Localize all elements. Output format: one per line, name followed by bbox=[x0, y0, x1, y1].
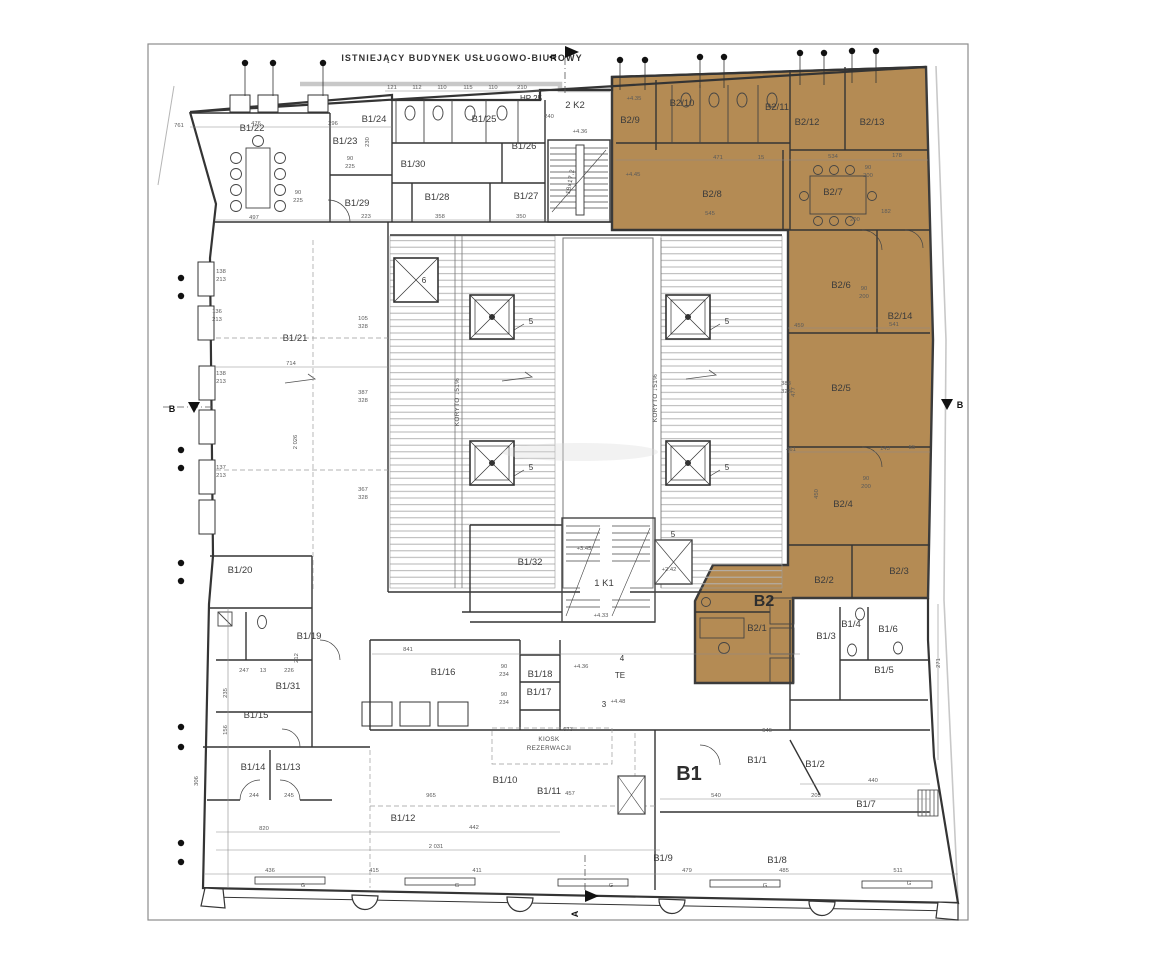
section-letter-b-left: B bbox=[169, 404, 176, 414]
conference-table-b122 bbox=[231, 136, 286, 212]
shaft-small bbox=[618, 776, 645, 814]
dimension-text: 411 bbox=[472, 868, 481, 874]
room-label: B1/1 bbox=[747, 755, 767, 766]
room-label: B1/10 bbox=[493, 775, 518, 786]
room-label: B1/32 bbox=[518, 557, 543, 568]
dimension-text: 200 bbox=[859, 294, 869, 300]
dimension-text: 244 bbox=[249, 793, 259, 799]
room-label: B1/23 bbox=[333, 136, 358, 147]
dimension-text: 110 bbox=[488, 85, 497, 91]
dimension-text: 471 bbox=[713, 155, 723, 161]
room-label: B2/3 bbox=[889, 566, 909, 577]
dimension-text: 121 bbox=[387, 85, 397, 91]
dimension-text: 485 bbox=[779, 868, 789, 874]
dimension-text: 296 bbox=[328, 121, 338, 127]
shaft-label: 5 bbox=[725, 463, 730, 472]
dimension-text: 350 bbox=[516, 214, 526, 220]
room-label: B1/14 bbox=[241, 762, 266, 773]
room-label: B1/15 bbox=[244, 710, 269, 721]
dimension-text: 323 bbox=[781, 389, 791, 395]
dimension-text: 138 bbox=[216, 269, 226, 275]
room-label: B1/3 bbox=[816, 631, 836, 642]
dimension-text: +2.42 bbox=[662, 567, 677, 573]
dimension-text: 387 bbox=[358, 390, 368, 396]
room-label: B2/4 bbox=[833, 499, 853, 510]
dimension-text: +4.35 bbox=[627, 96, 642, 102]
dimension-text: 328 bbox=[358, 398, 368, 404]
dimension-text: 271 bbox=[936, 658, 942, 668]
elevator-shaft bbox=[655, 540, 692, 584]
dimension-text: +4.36 bbox=[574, 664, 589, 670]
dimension-text: 497 bbox=[249, 215, 259, 221]
room-label: B1/30 bbox=[401, 159, 426, 170]
dimension-text: 225 bbox=[293, 198, 303, 204]
dimension-text: 646 bbox=[762, 728, 772, 734]
floor-plan-drawing: ISTNIEJĄCY BUDYNEK USŁUGOWO-BIUROWY bbox=[0, 0, 1166, 960]
room-label: B2/5 bbox=[831, 383, 851, 394]
section-flag-b-right bbox=[941, 399, 953, 410]
room-label: B1/28 bbox=[425, 192, 450, 203]
shaft-label: 5 bbox=[529, 463, 534, 472]
dimension-text: +4.48 bbox=[611, 699, 626, 705]
room-label: B2/6 bbox=[831, 280, 851, 291]
room-label: B1/19 bbox=[297, 631, 322, 642]
dimension-text: 442 bbox=[469, 825, 479, 831]
dimension-text: 367 bbox=[358, 487, 368, 493]
dimension-text: 137 bbox=[216, 465, 226, 471]
dimension-text: 234 bbox=[499, 700, 509, 706]
dimension-text: 841 bbox=[403, 647, 413, 653]
dimension-text: 213 bbox=[212, 317, 222, 323]
shaft-label: 3 bbox=[602, 700, 607, 709]
watermark-smudge bbox=[502, 443, 658, 461]
dimension-text: 213 bbox=[216, 277, 226, 283]
dimension-text: 90 bbox=[863, 476, 869, 482]
section-letter-b-right: B bbox=[957, 400, 964, 410]
dimension-text: 240 bbox=[544, 114, 554, 120]
dimension-text: 15 bbox=[758, 155, 764, 161]
dimension-text: 2 026 bbox=[293, 435, 299, 450]
room-label: B1/7 bbox=[856, 799, 876, 810]
dimension-text: 476 bbox=[251, 121, 261, 127]
ramp-hatch bbox=[918, 790, 938, 816]
dimension-text: 457 bbox=[565, 791, 575, 797]
annotation: REZERWACJI bbox=[527, 745, 572, 752]
room-label: B2/13 bbox=[860, 117, 885, 128]
shaft-label: 5 bbox=[725, 317, 730, 326]
dimension-text: 225 bbox=[345, 164, 355, 170]
room-label: B2/14 bbox=[888, 311, 913, 322]
dimension-text: 540 bbox=[711, 793, 721, 799]
shaft-6 bbox=[394, 258, 438, 302]
dimension-text: 761 bbox=[174, 123, 184, 129]
wc-fixtures-top bbox=[396, 100, 518, 143]
floor-plan-page: ISTNIEJĄCY BUDYNEK USŁUGOWO-BIUROWY bbox=[0, 0, 1166, 960]
shaft-label: 4 bbox=[620, 654, 625, 663]
dimension-text: 440 bbox=[868, 778, 878, 784]
dimension-text: 328 bbox=[358, 495, 368, 501]
dimension-text: 90 bbox=[501, 692, 507, 698]
area-label: B1 bbox=[676, 763, 702, 785]
room-label: B2/7 bbox=[823, 187, 843, 198]
dimension-text: 245 bbox=[284, 793, 294, 799]
dimension-text: 226 bbox=[284, 668, 294, 674]
dimension-text: +4.33 bbox=[594, 613, 609, 619]
room-label: B1/11 bbox=[537, 786, 561, 797]
stair-2K2 bbox=[550, 145, 608, 215]
dimension-text: 156 bbox=[223, 725, 229, 735]
dimension-text: 541 bbox=[889, 322, 899, 328]
room-label: B1/21 bbox=[283, 333, 308, 344]
dimension-text: 415 bbox=[369, 868, 379, 874]
dimension-text: 136 bbox=[212, 309, 222, 315]
roof-slope-arrow bbox=[285, 374, 315, 383]
dimension-text: 234 bbox=[499, 672, 509, 678]
dimension-text: 200 bbox=[850, 217, 860, 223]
dimension-text: 306 bbox=[194, 776, 200, 786]
room-label: B1/25 bbox=[472, 114, 497, 125]
dimension-text: 90 bbox=[861, 286, 867, 292]
room-label: B1/8 bbox=[767, 855, 787, 866]
dimension-text: 213 bbox=[216, 379, 226, 385]
drawing-title: ISTNIEJĄCY BUDYNEK USŁUGOWO-BIUROWY bbox=[341, 53, 582, 63]
dimension-text: 143 bbox=[880, 446, 890, 452]
room-label: B2/11 bbox=[765, 102, 789, 113]
shaft-label: TE bbox=[615, 671, 625, 680]
shaft-label: 6 bbox=[422, 276, 427, 285]
atrium-void bbox=[563, 238, 653, 588]
dimension-text: 436 bbox=[265, 868, 275, 874]
room-label: B2/12 bbox=[795, 117, 820, 128]
dimension-text: 230 bbox=[365, 137, 371, 147]
dimension-text: 545 bbox=[705, 211, 715, 217]
room-label: B2/8 bbox=[702, 189, 722, 200]
dimension-text: G bbox=[301, 883, 306, 889]
shaft-label: HP 25 bbox=[520, 94, 543, 103]
dimension-text: 328 bbox=[358, 324, 368, 330]
dimension-text: 714 bbox=[286, 361, 296, 367]
annotation: 18x17,2 bbox=[565, 169, 576, 195]
dimension-text: 479 bbox=[682, 868, 692, 874]
dimension-text: 182 bbox=[881, 209, 891, 215]
room-label: B1/17 bbox=[527, 687, 552, 698]
section-flag-b-left bbox=[188, 402, 200, 413]
room-label: B1/13 bbox=[276, 762, 301, 773]
stair-label: 1 K1 bbox=[594, 578, 614, 589]
dimension-text: 450 bbox=[814, 489, 820, 499]
dimension-text: G bbox=[609, 883, 614, 889]
dimension-text: 358 bbox=[435, 214, 445, 220]
room-label: B2/9 bbox=[620, 115, 640, 126]
dimension-text: 477 bbox=[791, 387, 797, 397]
room-label: B2/2 bbox=[814, 575, 834, 586]
room-label: B1/4 bbox=[841, 619, 861, 630]
skylight bbox=[666, 295, 710, 339]
dimension-text: G bbox=[907, 881, 912, 887]
dimension-text: 461 bbox=[786, 447, 796, 453]
room-label: B1/18 bbox=[528, 669, 553, 680]
dimension-text: G bbox=[455, 883, 460, 889]
room-label: B1/9 bbox=[653, 853, 673, 864]
dimension-text: 90 bbox=[295, 190, 301, 196]
section-flag-a-bottom bbox=[585, 890, 599, 902]
dimension-text: 178 bbox=[892, 153, 902, 159]
annotation: KORYTO ↓51% bbox=[454, 378, 461, 426]
room-label: B1/6 bbox=[878, 624, 898, 635]
section-letter-a-top: A bbox=[548, 53, 558, 60]
dimension-text: 820 bbox=[259, 826, 269, 832]
dimension-text: 55 bbox=[909, 445, 915, 451]
shaft-label: 5 bbox=[671, 530, 676, 539]
dimension-text: 673 bbox=[563, 727, 573, 733]
dimension-text: 223 bbox=[361, 214, 371, 220]
room-label: B1/12 bbox=[391, 813, 416, 824]
section-letter-a-bottom: A bbox=[570, 910, 580, 917]
dimension-text: G bbox=[763, 883, 768, 889]
dimension-text: 90 bbox=[347, 156, 353, 162]
dimension-text: 235 bbox=[223, 688, 229, 698]
room-label: B1/16 bbox=[431, 667, 456, 678]
skylight bbox=[470, 295, 514, 339]
room-label: B1/31 bbox=[276, 681, 301, 692]
room-label: B2/1 bbox=[747, 623, 767, 634]
dimension-text: 511 bbox=[893, 868, 902, 874]
courtyard-roof bbox=[285, 236, 782, 588]
skylight bbox=[470, 441, 514, 485]
dimension-text: 247 bbox=[239, 668, 249, 674]
room-label: B1/24 bbox=[362, 114, 387, 125]
dimension-text: 459 bbox=[794, 323, 804, 329]
dimension-text: +4.36 bbox=[573, 129, 588, 135]
dimension-text: 534 bbox=[828, 154, 838, 160]
dimension-text: 210 bbox=[517, 85, 527, 91]
dimension-text: 110 bbox=[437, 85, 446, 91]
dimension-text: 200 bbox=[863, 173, 873, 179]
plinth-line bbox=[207, 897, 954, 911]
dimension-text: 115 bbox=[463, 85, 472, 91]
dimension-text: 105 bbox=[358, 316, 368, 322]
dimension-text: +3.45 bbox=[577, 546, 592, 552]
dimension-text: 90 bbox=[865, 165, 871, 171]
dimension-text: 13 bbox=[260, 668, 266, 674]
room-label: B1/27 bbox=[514, 191, 539, 202]
dimension-text: 200 bbox=[861, 484, 871, 490]
annotation: KIOSK bbox=[538, 736, 560, 743]
room-label: B1/2 bbox=[805, 759, 825, 770]
dimension-text: 212 bbox=[294, 653, 300, 663]
dimension-text: 90 bbox=[501, 664, 507, 670]
dimension-text: 112 bbox=[412, 85, 421, 91]
dimension-text: 388 bbox=[781, 381, 791, 387]
room-label: B2/10 bbox=[670, 98, 695, 109]
room-label: B1/29 bbox=[345, 198, 370, 209]
shaft-label: 5 bbox=[529, 317, 534, 326]
dimension-text: 965 bbox=[426, 793, 436, 799]
dimension-text: 205 bbox=[811, 793, 821, 799]
area-label: B2 bbox=[754, 593, 775, 610]
room-label: B1/20 bbox=[228, 565, 253, 576]
dimension-text: 138 bbox=[216, 371, 226, 377]
skylight bbox=[666, 441, 710, 485]
room-label: B1/26 bbox=[512, 141, 537, 152]
stair-label: 2 K2 bbox=[565, 100, 585, 111]
dimension-text: 213 bbox=[216, 473, 226, 479]
annotation: KORYTO ↓51% bbox=[652, 374, 659, 422]
dimension-text: +4.45 bbox=[626, 172, 641, 178]
room-label: B1/5 bbox=[874, 665, 894, 676]
dimension-text: 2 031 bbox=[429, 844, 444, 850]
